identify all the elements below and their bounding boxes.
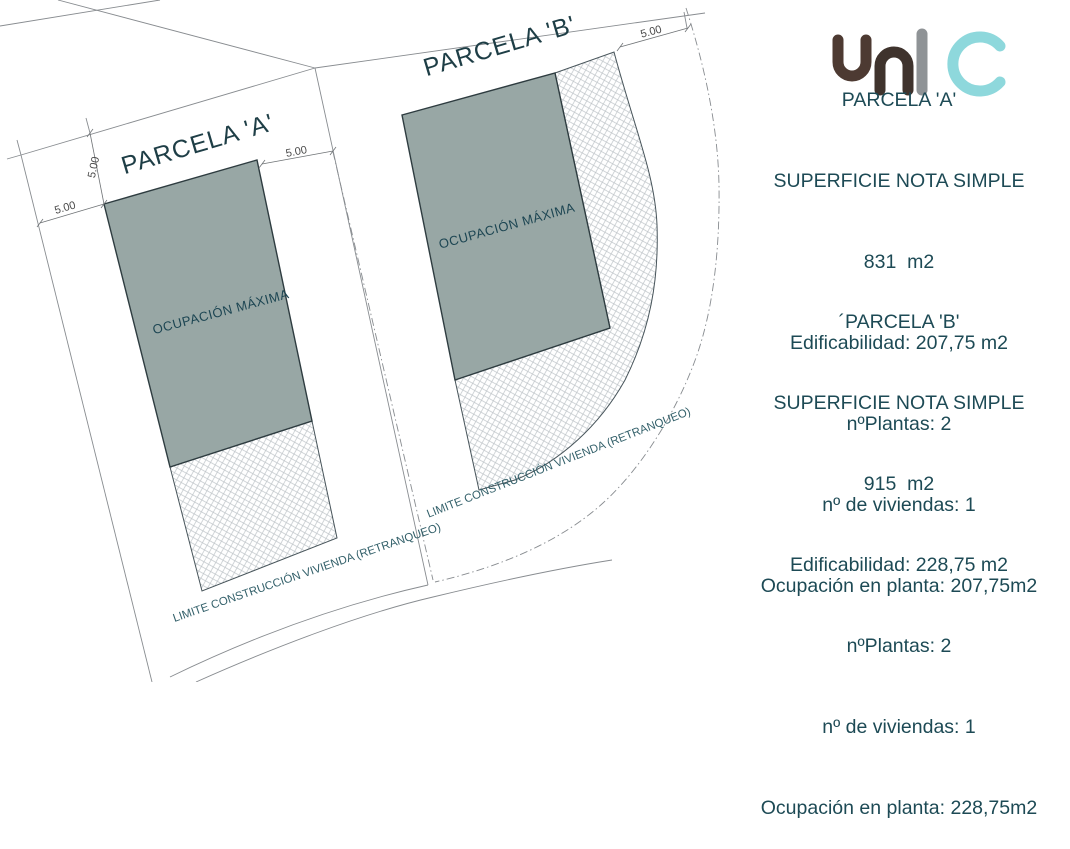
parcel-b-info-line: nºPlantas: 2: [734, 633, 1064, 660]
parcel-b-title: PARCELA 'B': [420, 11, 579, 83]
dimension-tick: [87, 129, 93, 137]
dimension-tick: [617, 43, 623, 51]
street-edge-line: [170, 585, 428, 677]
parcel-a-info-line: SUPERFICIE NOTA SIMPLE: [734, 168, 1064, 195]
dimension-label: 5.00: [53, 199, 77, 216]
dimension-tick: [685, 24, 691, 32]
parcel-b-info-line: SUPERFICIE NOTA SIMPLE: [734, 390, 1064, 417]
street-edge-line: [196, 560, 612, 682]
parcel-b-info-block: ´PARCELA 'B' SUPERFICIE NOTA SIMPLE 915 …: [734, 255, 1064, 849]
extension-stub: [86, 118, 90, 133]
boundary-line: [58, 0, 315, 68]
parcel-a-info-title: PARCELA 'A': [734, 87, 1064, 114]
parcel-b-info-title: ´PARCELA 'B': [734, 309, 1064, 336]
dimension-label: 5.00: [639, 24, 663, 41]
dimension-label: 5.00: [285, 144, 308, 160]
parcel-b-info-line: Ocupación en planta: 228,75m2: [734, 795, 1064, 822]
parcel-b-info-line: Edificabilidad: 228,75 m2: [734, 552, 1064, 579]
parcel-a-envelope: [104, 160, 337, 591]
extension-stub: [17, 140, 21, 155]
parcel-b-info-line: 915 m2: [734, 471, 1064, 498]
parcel-b-info-line: nº de viviendas: 1: [734, 714, 1064, 741]
extension-stub: [684, 12, 687, 28]
boundary-line: [0, 0, 160, 26]
extension-stub: [7, 155, 21, 159]
parcel-divider-dashed-line: [333, 152, 433, 580]
parcel-b-envelope: [402, 52, 657, 490]
dimension-label: 5.00: [86, 156, 102, 179]
